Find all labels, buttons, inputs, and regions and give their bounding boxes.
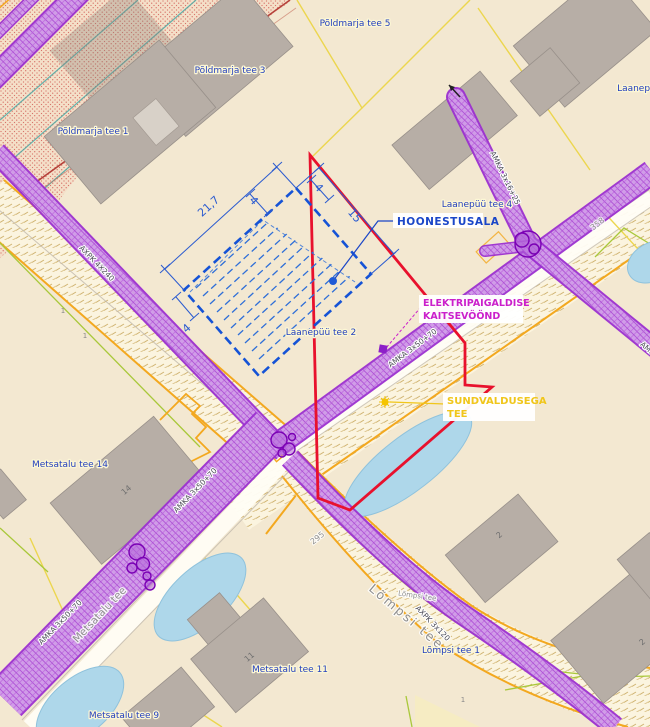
address-label: Põldmarja tee 1 — [58, 127, 129, 137]
address-label: Lõmpsi tee 1 — [422, 646, 480, 656]
callout-label-elektri-2: KAITSEVÖÖND — [423, 311, 500, 322]
callout-label-hoonestusala: HOONESTUSALA — [397, 216, 500, 228]
address-label: Metsatalu tee 11 — [252, 665, 328, 675]
building-area-marker — [329, 277, 337, 285]
address-label: Laanepüü tee 2 — [286, 328, 356, 338]
callout-label-sund-1: SUNDVALDUSEGA — [447, 396, 547, 407]
address-label: Laanepüü tee — [617, 84, 650, 94]
callout-label-sund-2: TEE — [447, 409, 468, 420]
address-label: Põldmarja tee 5 — [320, 19, 391, 29]
address-label: Laanepüü tee 4 — [442, 200, 513, 210]
map-canvas[interactable]: 21,7 15 4 4 4 Metsatalu tee Lõmpsi tee L… — [0, 0, 650, 727]
address-label: Põldmarja tee 3 — [195, 66, 266, 76]
parcel-mark: 1 — [61, 307, 65, 315]
address-label: Metsatalu tee 14 — [32, 460, 108, 470]
parcel-mark: 1 — [83, 332, 87, 340]
callout-label-elektri-1: ELEKTRIPAIGALDISE — [423, 298, 530, 309]
planning-map: 21,7 15 4 4 4 Metsatalu tee Lõmpsi tee L… — [0, 0, 650, 727]
cable-marker — [378, 344, 387, 353]
parcel-mark: 1 — [461, 696, 465, 704]
address-label: Metsatalu tee 9 — [89, 711, 160, 721]
